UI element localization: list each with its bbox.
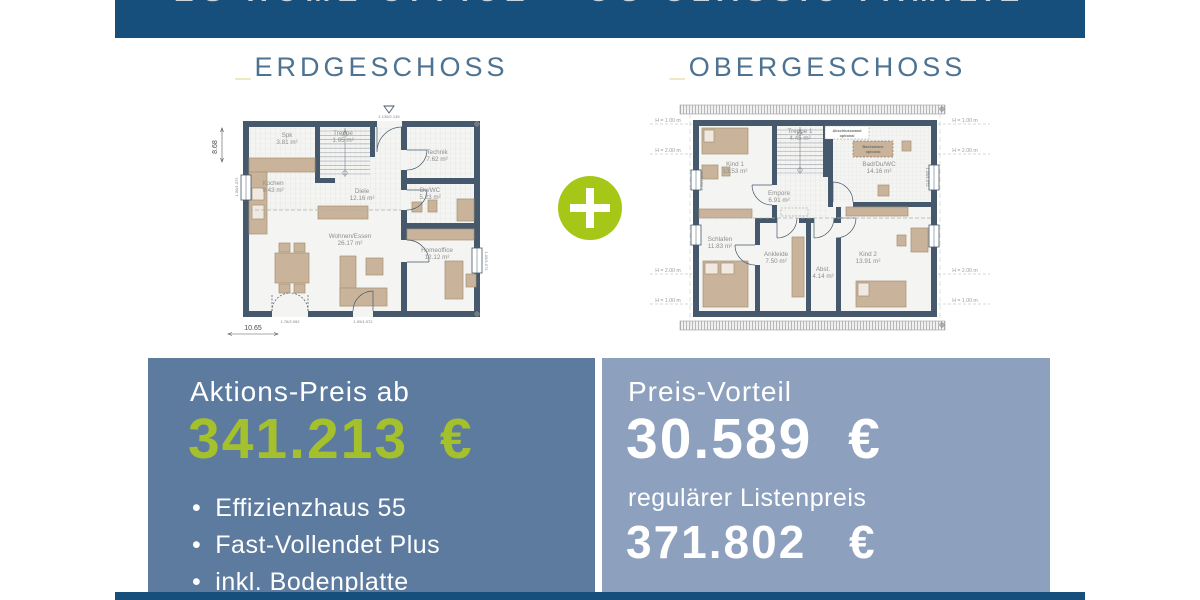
heading-eg-label: ERDGESCHOSS bbox=[254, 52, 508, 82]
room-label-bad: Bad/Du/WC bbox=[862, 161, 896, 168]
window-size-label-left: 1.00/1.072 bbox=[699, 171, 704, 191]
room-area-ankleide: 7.50 m² bbox=[765, 258, 786, 265]
room-area-empore: 6.91 m² bbox=[768, 197, 789, 204]
note-optional-wall-line2: optional bbox=[840, 134, 855, 138]
room-area-abst: 4.14 m² bbox=[812, 273, 833, 280]
banner: EG HOME OFFICE + OG CLASSIC FAMILIE bbox=[115, 0, 1085, 38]
room-label-kochen: Kochen bbox=[262, 180, 284, 187]
room-label-treppe: Treppe bbox=[333, 130, 353, 137]
offer-label: Aktions-Preis ab bbox=[190, 376, 595, 408]
room-label-treppe1: Treppe 1 bbox=[788, 128, 813, 135]
room-area-kind1: 13.53 m² bbox=[723, 168, 748, 175]
heading-underscore: _ bbox=[235, 52, 254, 82]
price-advantage-box: Preis-Vorteil 30.589 € regulärer Listenp… bbox=[602, 358, 1050, 592]
room-label-spk: Spk bbox=[282, 132, 294, 139]
room-area-homeoffice: 12.12 m² bbox=[425, 254, 450, 261]
room-area-schlafen: 11.83 m² bbox=[708, 243, 732, 250]
room-label-diele: Diele bbox=[355, 188, 370, 195]
erdgeschoss-floorplan: Spk 3.81 m² Treppe 1.95 m² Technik 7.62 … bbox=[190, 98, 510, 353]
room-area-treppe: 1.95 m² bbox=[332, 137, 353, 144]
note-optional-wall-line1: Abschlusswand bbox=[833, 129, 863, 133]
height-label-right-2: H = 2.00 m bbox=[952, 148, 978, 154]
room-label-duwc: Du/WC bbox=[420, 187, 441, 194]
heading-obergeschoss: _OBERGESCHOSS bbox=[658, 52, 978, 83]
height-label-left-3: H = 2.00 m bbox=[655, 268, 681, 274]
flyer-page: EG HOME OFFICE + OG CLASSIC FAMILIE _ERD… bbox=[0, 0, 1200, 600]
room-label-schlafen: Schlafen bbox=[708, 236, 733, 243]
heading-erdgeschoss: _ERDGESCHOSS bbox=[212, 52, 532, 83]
list-price-label: regulärer Listenpreis bbox=[628, 484, 1050, 513]
room-area-technik: 7.62 m² bbox=[426, 156, 447, 163]
room-label-wohnen: Wohnen/Essen bbox=[329, 233, 372, 240]
room-area-kochen: 9.43 m² bbox=[262, 187, 283, 194]
height-label-left-4: H = 1.00 m bbox=[655, 298, 681, 304]
height-label-left-1: H = 1.00 m bbox=[655, 118, 681, 124]
height-label-right-3: H = 2.00 m bbox=[952, 268, 978, 274]
height-label-left-2: H = 2.00 m bbox=[655, 148, 681, 154]
room-label-kind1: Kind 1 bbox=[726, 161, 744, 168]
room-label-ankleide: Ankleide bbox=[764, 251, 789, 258]
window-size-label-right: 1.09/1.072 bbox=[484, 252, 489, 272]
height-label-right-4: H = 1.00 m bbox=[952, 298, 978, 304]
offer-bullet-1: Effizienzhaus 55 bbox=[192, 494, 595, 523]
room-label-homeoffice: Homeoffice bbox=[421, 247, 453, 254]
room-label-technik: Technik bbox=[426, 149, 448, 156]
heading-og-label: OBERGESCHOSS bbox=[689, 52, 967, 82]
room-label-kind2: Kind 2 bbox=[859, 251, 877, 258]
window-size-label-left: 1.00/1.072 bbox=[234, 177, 239, 197]
list-price-value: 371.802 € bbox=[626, 515, 1050, 569]
terrace-door-size-label: 1.76/2.092 bbox=[281, 319, 301, 324]
note-optional-tub-line2: optional bbox=[866, 150, 881, 154]
note-optional-tub-line1: Badewanne bbox=[862, 145, 883, 149]
room-label-empore: Empore bbox=[768, 190, 791, 197]
plus-icon bbox=[558, 176, 622, 240]
height-label-right-1: H = 1.00 m bbox=[952, 118, 978, 124]
bottom-bar bbox=[115, 592, 1085, 600]
room-label-abst: Abst. bbox=[816, 266, 831, 273]
room-area-spk: 3.81 m² bbox=[276, 139, 297, 146]
room-area-duwc: 5.23 m² bbox=[419, 194, 440, 201]
offer-box: Aktions-Preis ab 341.213 € Effizienzhaus… bbox=[148, 358, 595, 592]
room-area-diele: 12.16 m² bbox=[350, 195, 375, 202]
advantage-price: 30.589 € bbox=[626, 410, 1050, 470]
room-area-treppe1: 4.45 m² bbox=[789, 135, 810, 142]
patio-door-size-label: 1.09/1.072 bbox=[354, 319, 374, 324]
offer-bullet-2: Fast-Vollendet Plus bbox=[192, 531, 595, 560]
obergeschoss-floorplan: Kind 1 13.53 m² Treppe 1 4.45 m² Bad/Du/… bbox=[640, 95, 1000, 345]
window-size-label-right: 1.09/1.072 bbox=[925, 168, 930, 188]
dim-height-label: 8.68 bbox=[212, 140, 219, 154]
heading-underscore: _ bbox=[670, 52, 689, 82]
entry-door-size-label: 1.135/2.135 bbox=[378, 114, 400, 119]
dim-width-label: 10.65 bbox=[244, 325, 262, 332]
room-area-kind2: 13.91 m² bbox=[856, 258, 881, 265]
banner-title: EG HOME OFFICE + OG CLASSIC FAMILIE bbox=[115, 0, 1085, 9]
plus-horizontal-bar bbox=[570, 204, 610, 212]
offer-bullet-list: Effizienzhaus 55 Fast-Vollendet Plus ink… bbox=[192, 494, 595, 597]
room-area-bad: 14.16 m² bbox=[867, 168, 892, 175]
offer-price: 341.213 € bbox=[188, 410, 595, 470]
room-area-wohnen: 26.17 m² bbox=[338, 240, 363, 247]
advantage-label: Preis-Vorteil bbox=[628, 376, 1050, 408]
